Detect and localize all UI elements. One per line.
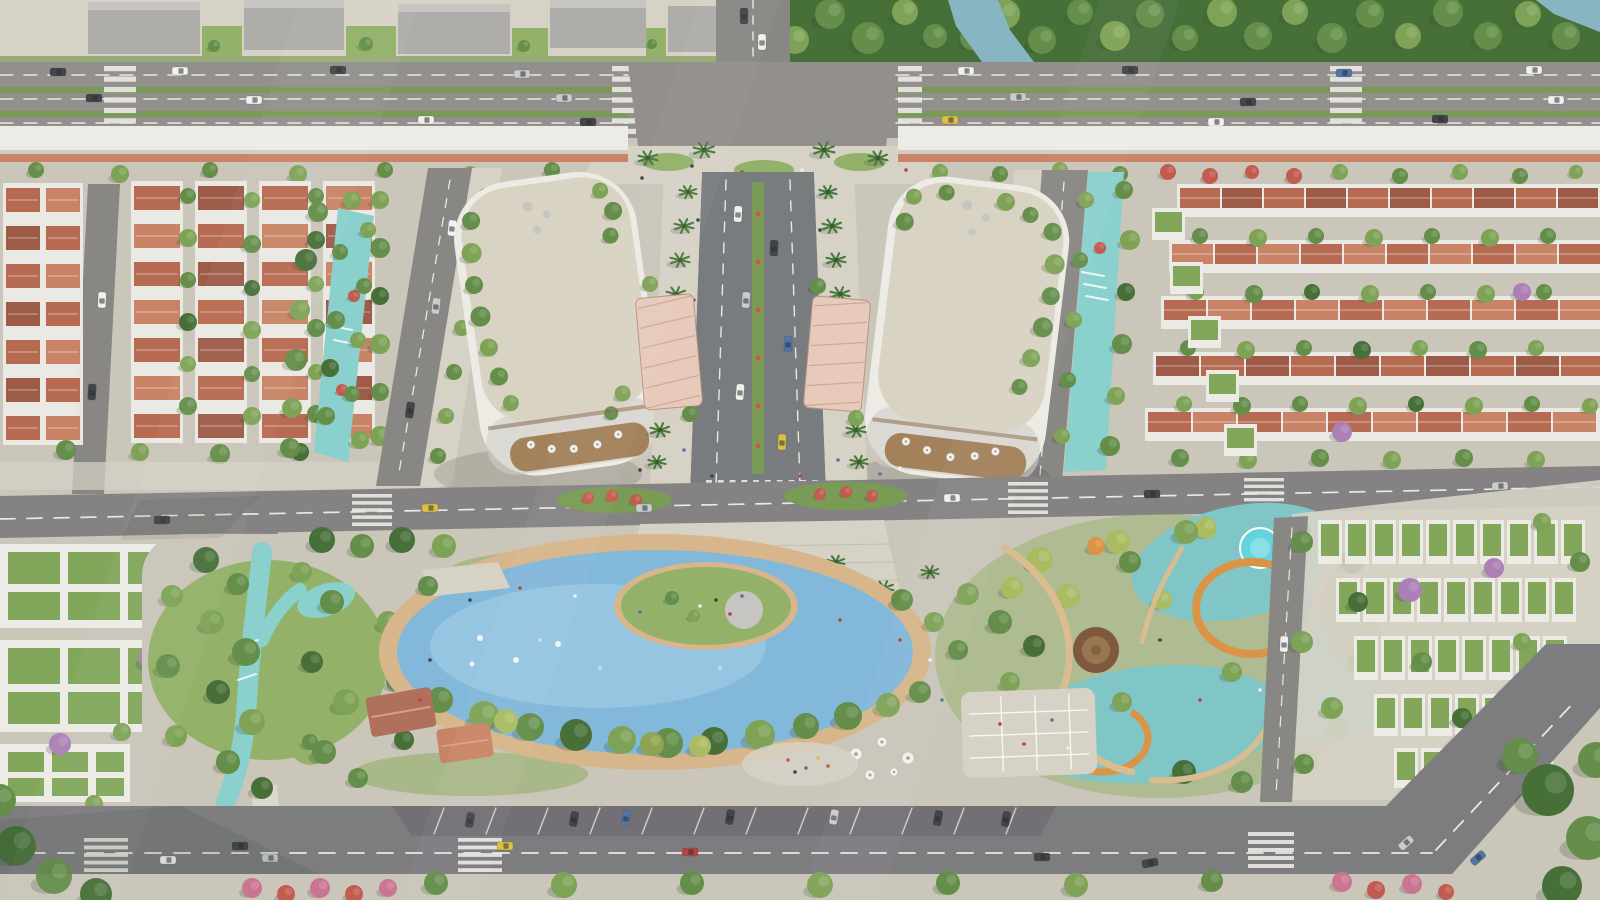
rect <box>0 0 1600 900</box>
layer-effects <box>0 0 1600 900</box>
aerial-development-render <box>0 0 1600 900</box>
scene-svg <box>0 0 1600 900</box>
